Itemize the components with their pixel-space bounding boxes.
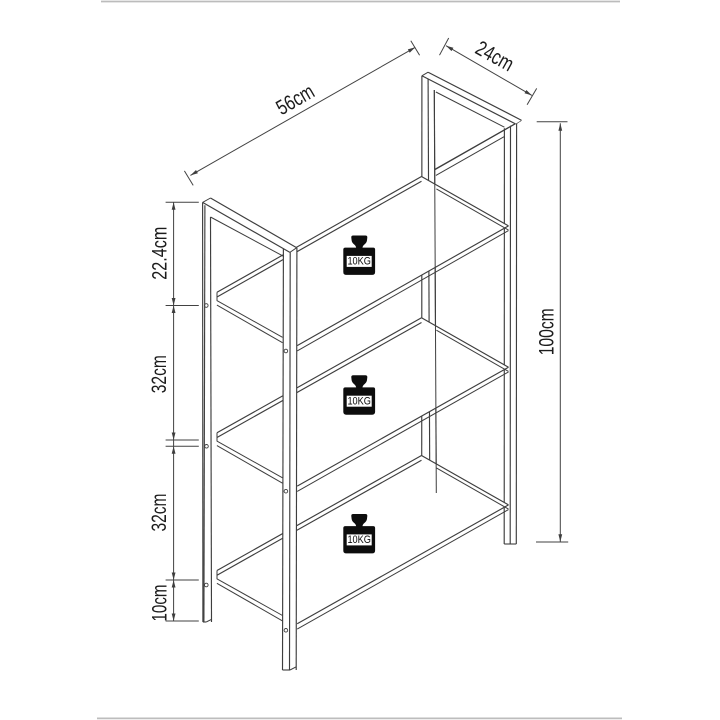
svg-text:10cm: 10cm: [148, 585, 171, 622]
svg-text:32cm: 32cm: [148, 494, 171, 532]
svg-text:22.4cm: 22.4cm: [148, 227, 171, 280]
svg-text:10KG: 10KG: [347, 395, 371, 407]
svg-text:100cm: 100cm: [535, 308, 558, 355]
svg-text:32cm: 32cm: [148, 355, 171, 393]
svg-text:56cm: 56cm: [272, 80, 318, 120]
svg-text:10KG: 10KG: [347, 256, 371, 268]
svg-text:10KG: 10KG: [347, 534, 371, 546]
svg-text:24cm: 24cm: [471, 37, 517, 77]
